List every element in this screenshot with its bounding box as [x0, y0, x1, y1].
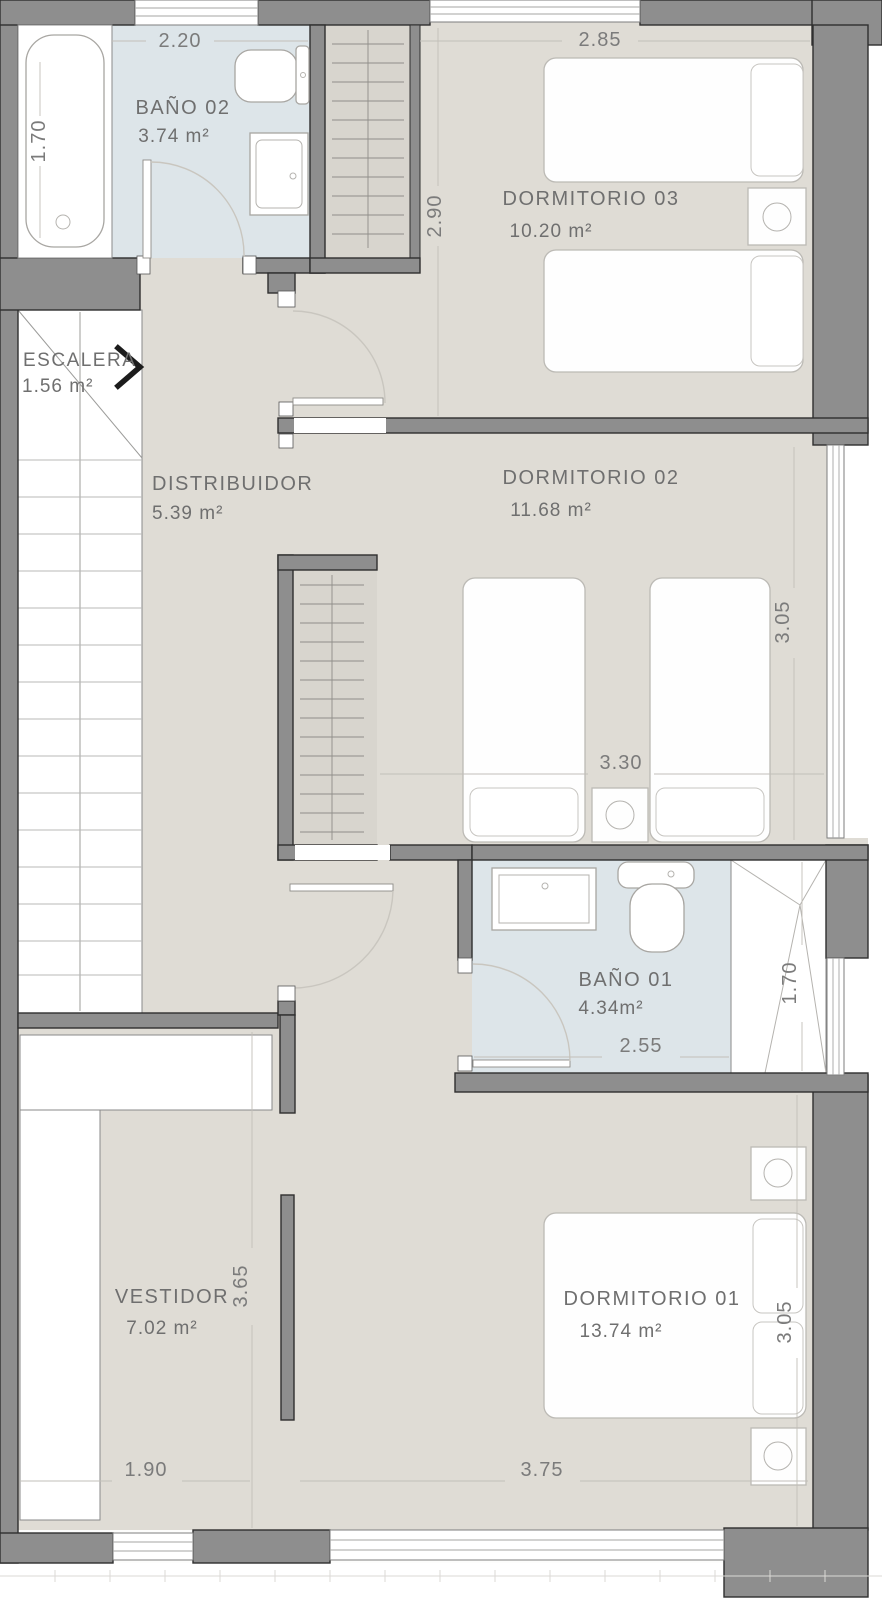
room-label-bano01: BAÑO 01 — [579, 967, 674, 991]
dimension-label: 1.70 — [779, 962, 801, 1005]
escalera-stairs — [18, 310, 142, 1013]
pillow — [470, 788, 578, 836]
door-jamb — [458, 958, 472, 973]
sink — [492, 868, 596, 930]
wall-segment — [268, 273, 295, 293]
room-area-bano02: 3.74 m² — [138, 126, 209, 147]
room-area-dormitorio03: 10.20 m² — [510, 221, 593, 242]
sink — [250, 133, 308, 215]
dimension-label: 3.05 — [772, 601, 794, 644]
toilet — [235, 50, 297, 102]
wall-segment — [410, 25, 420, 265]
wall-segment — [0, 258, 140, 310]
closet-top-hatch — [332, 30, 404, 248]
wall-segment — [310, 25, 325, 273]
window — [113, 1533, 193, 1560]
window — [135, 0, 258, 25]
wall-segment — [0, 1533, 113, 1563]
pillow — [656, 788, 764, 836]
window — [827, 958, 844, 1075]
wall-segment — [278, 555, 377, 570]
floor-plan: BAÑO 02 3.74 m² 2.20 1.70 DORMITORIO 03 … — [0, 0, 882, 1600]
wardrobe — [20, 1035, 272, 1110]
closet-top-floor — [325, 25, 410, 258]
wall-segment — [18, 1013, 278, 1028]
door-leaf — [293, 398, 383, 405]
door-leaf — [143, 160, 151, 258]
dimension-label: 1.70 — [28, 120, 50, 163]
room-area-bano01: 4.34m² — [578, 998, 643, 1019]
wall-segment — [813, 25, 868, 445]
wall-segment — [278, 1001, 295, 1015]
door-jamb — [243, 256, 256, 274]
room-label-dormitorio01: DORMITORIO 01 — [564, 1288, 741, 1310]
door-jamb — [278, 986, 295, 1001]
wall-segment — [310, 258, 420, 273]
door-leaf — [473, 1060, 570, 1067]
room-area-vestidor: 7.02 m² — [126, 1318, 197, 1339]
door-opening — [294, 418, 386, 433]
nightstand — [748, 188, 806, 245]
wall-segment — [278, 555, 293, 860]
room-label-escalera: ESCALERA — [23, 350, 136, 371]
wall-segment — [258, 0, 430, 25]
room-area-distribuidor: 5.39 m² — [152, 503, 223, 524]
wall-segment — [813, 1075, 868, 1530]
nightstand — [751, 1428, 806, 1485]
door-jamb — [137, 256, 150, 274]
door-jamb — [279, 402, 293, 416]
wall-segment — [280, 1015, 295, 1113]
wall-segment — [826, 845, 868, 958]
wall-segment — [455, 1073, 868, 1092]
door-opening — [295, 845, 390, 860]
wardrobe — [20, 1110, 100, 1520]
room-area-dormitorio01: 13.74 m² — [580, 1321, 663, 1342]
pillow — [751, 256, 803, 366]
window — [430, 0, 640, 22]
room-label-bano02: BAÑO 02 — [136, 95, 231, 119]
dimension-label: 3.75 — [521, 1459, 564, 1481]
dimension-label: 3.65 — [230, 1265, 252, 1308]
toilet-cistern — [296, 46, 309, 104]
room-label-dormitorio03: DORMITORIO 03 — [503, 188, 680, 210]
room-area-escalera: 1.56 m² — [22, 376, 93, 397]
nightstand — [751, 1147, 806, 1200]
dimension-label: 2.90 — [424, 195, 446, 238]
dimension-label: 2.85 — [579, 29, 622, 51]
toilet — [630, 884, 684, 952]
room-area-dormitorio02: 11.68 m² — [510, 500, 592, 521]
door-jamb — [279, 434, 293, 448]
room-label-vestidor: VESTIDOR — [115, 1286, 229, 1308]
window — [827, 445, 844, 838]
door-jamb — [458, 1056, 472, 1071]
pillow — [753, 1219, 803, 1313]
room-label-dormitorio02: DORMITORIO 02 — [503, 467, 680, 489]
door-jamb — [278, 291, 295, 307]
wall-segment — [0, 0, 18, 1563]
dimension-label: 3.05 — [774, 1301, 796, 1344]
pillow — [751, 64, 803, 176]
exterior-right-mid — [844, 958, 868, 1075]
dimension-label: 3.30 — [600, 752, 643, 774]
wall-segment — [193, 1530, 330, 1563]
wall-segment — [458, 860, 472, 960]
dimension-label: 2.55 — [620, 1035, 663, 1057]
wall-segment — [390, 845, 472, 860]
wall-segment — [281, 1195, 294, 1420]
wall-segment — [724, 1528, 868, 1597]
room-label-distribuidor: DISTRIBUIDOR — [152, 473, 313, 495]
dimension-label: 2.20 — [159, 30, 202, 52]
closet-dorm02-floor — [293, 570, 377, 845]
floor-plan-page: BAÑO 02 3.74 m² 2.20 1.70 DORMITORIO 03 … — [0, 0, 882, 1600]
window — [330, 1530, 724, 1560]
door-leaf — [290, 884, 393, 891]
wall-segment — [0, 0, 135, 25]
nightstand — [592, 788, 648, 842]
exterior-right-upper — [844, 445, 868, 838]
exterior-right — [868, 25, 882, 1600]
dimension-label: 1.90 — [125, 1459, 168, 1481]
wall-segment — [472, 845, 868, 860]
